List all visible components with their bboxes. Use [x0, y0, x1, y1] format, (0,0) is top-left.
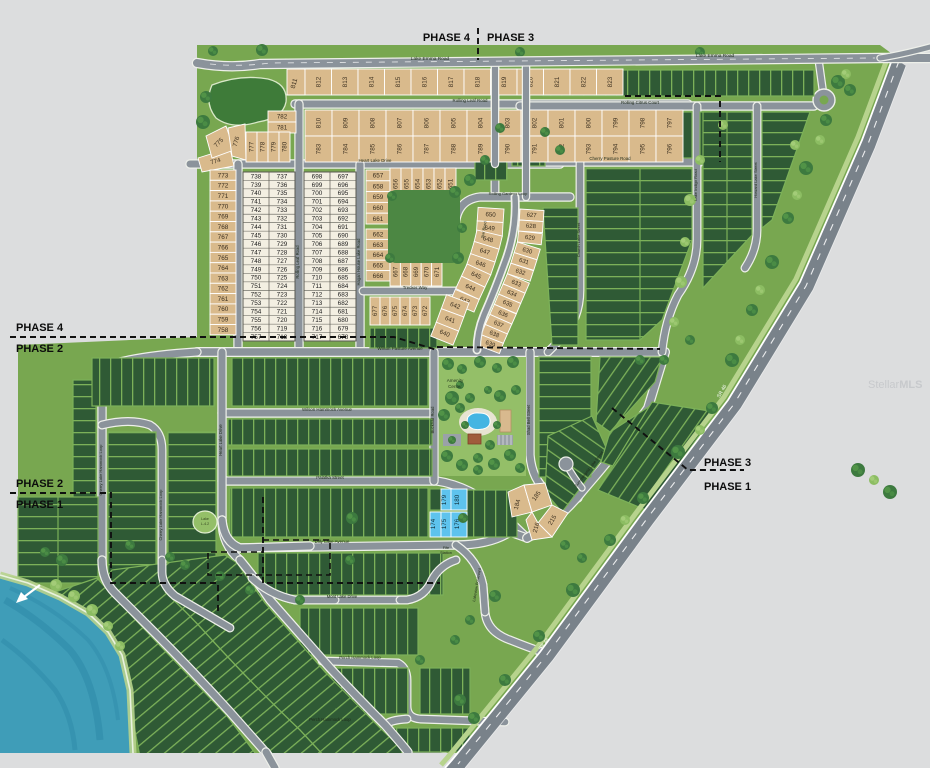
svg-text:Center: Center	[448, 384, 462, 389]
svg-text:758: 758	[218, 327, 229, 334]
svg-text:StellarMLS: StellarMLS	[868, 379, 922, 391]
svg-text:788: 788	[451, 143, 458, 154]
svg-text:PHASE 4: PHASE 4	[16, 322, 64, 334]
svg-text:680: 680	[338, 317, 349, 324]
svg-text:Perch Hammock Loop: Perch Hammock Loop	[309, 717, 351, 722]
svg-text:672: 672	[422, 305, 429, 316]
svg-text:823: 823	[607, 76, 614, 87]
svg-text:785: 785	[370, 143, 377, 154]
svg-text:652: 652	[437, 178, 444, 189]
svg-text:Wilson Pasture Avenue: Wilson Pasture Avenue	[377, 346, 423, 351]
svg-text:709: 709	[312, 266, 323, 273]
svg-text:767: 767	[218, 234, 229, 241]
svg-text:671: 671	[434, 266, 441, 277]
svg-text:666: 666	[373, 273, 384, 280]
svg-text:735: 735	[277, 190, 288, 197]
svg-text:Cherry Lake Hammock Loop: Cherry Lake Hammock Loop	[98, 444, 103, 496]
svg-text:771: 771	[218, 193, 229, 200]
svg-text:175: 175	[441, 518, 448, 529]
svg-text:Hagan House Lake Road: Hagan House Lake Road	[356, 238, 361, 286]
svg-text:684: 684	[338, 283, 349, 290]
svg-text:779: 779	[271, 141, 278, 152]
svg-text:793: 793	[586, 143, 593, 154]
svg-text:821: 821	[554, 76, 561, 87]
svg-text:683: 683	[338, 292, 349, 299]
svg-text:730: 730	[277, 232, 288, 239]
svg-text:777: 777	[249, 141, 256, 152]
svg-text:Lake Indigo Road: Lake Indigo Road	[693, 169, 698, 200]
svg-text:Lake: Lake	[201, 517, 209, 521]
svg-text:734: 734	[277, 199, 288, 206]
svg-text:772: 772	[218, 183, 229, 190]
svg-text:804: 804	[478, 117, 485, 128]
svg-text:628: 628	[526, 224, 537, 231]
svg-text:661: 661	[373, 216, 384, 223]
svg-text:738: 738	[251, 173, 262, 180]
svg-text:PHASE 3: PHASE 3	[704, 457, 751, 469]
svg-text:Mont Lake Drive: Mont Lake Drive	[327, 594, 358, 599]
svg-text:Shad Bell Street: Shad Bell Street	[526, 404, 531, 435]
svg-text:707: 707	[312, 249, 323, 256]
svg-text:Heart Lake Drive: Heart Lake Drive	[359, 158, 393, 163]
svg-text:736: 736	[277, 182, 288, 189]
svg-text:Lake Emma Road: Lake Emma Road	[411, 56, 450, 62]
svg-text:733: 733	[277, 207, 288, 214]
svg-text:739: 739	[251, 182, 262, 189]
svg-text:688: 688	[338, 249, 349, 256]
svg-text:674: 674	[402, 305, 409, 316]
svg-text:665: 665	[373, 263, 384, 270]
svg-text:765: 765	[218, 255, 229, 262]
svg-text:725: 725	[277, 275, 288, 282]
svg-text:Lake Emma Road: Lake Emma Road	[696, 53, 735, 59]
svg-text:817: 817	[448, 76, 455, 87]
svg-text:PHASE 4: PHASE 4	[423, 32, 471, 44]
svg-text:Heart Lake Drive: Heart Lake Drive	[218, 424, 223, 456]
svg-text:783: 783	[316, 143, 323, 154]
svg-text:PHASE 2: PHASE 2	[16, 478, 63, 490]
svg-text:761: 761	[218, 296, 229, 303]
svg-text:808: 808	[370, 117, 377, 128]
svg-text:754: 754	[251, 308, 262, 315]
svg-text:Dilly Lake Avenue: Dilly Lake Avenue	[315, 539, 350, 544]
svg-text:Trecker Way: Trecker Way	[403, 285, 428, 290]
svg-text:806: 806	[424, 117, 431, 128]
svg-text:Rolling Leaf Road: Rolling Leaf Road	[295, 245, 300, 279]
svg-text:805: 805	[451, 117, 458, 128]
svg-text:682: 682	[338, 300, 349, 307]
svg-text:691: 691	[338, 224, 349, 231]
svg-text:695: 695	[338, 190, 349, 197]
svg-text:741: 741	[251, 199, 262, 206]
svg-text:750: 750	[251, 275, 262, 282]
svg-text:669: 669	[413, 266, 420, 277]
svg-text:809: 809	[343, 117, 350, 128]
svg-text:694: 694	[338, 199, 349, 206]
svg-text:801: 801	[559, 117, 566, 128]
svg-text:Cherry Lake Hammock Loop: Cherry Lake Hammock Loop	[158, 489, 163, 541]
svg-text:814: 814	[368, 76, 375, 87]
svg-text:664: 664	[373, 252, 384, 259]
svg-text:816: 816	[421, 76, 428, 87]
svg-text:627: 627	[526, 213, 537, 220]
svg-text:729: 729	[277, 241, 288, 248]
svg-text:773: 773	[218, 172, 229, 179]
svg-text:658: 658	[373, 183, 384, 190]
svg-text:791: 791	[532, 143, 539, 154]
svg-text:815: 815	[395, 76, 402, 87]
svg-text:704: 704	[312, 224, 323, 231]
svg-text:657: 657	[373, 173, 384, 180]
svg-text:715: 715	[312, 317, 323, 324]
svg-text:675: 675	[392, 305, 399, 316]
svg-text:732: 732	[277, 216, 288, 223]
svg-text:728: 728	[277, 249, 288, 256]
svg-text:803: 803	[505, 117, 512, 128]
svg-text:663: 663	[373, 242, 384, 249]
svg-text:762: 762	[218, 286, 229, 293]
svg-text:726: 726	[277, 266, 288, 273]
svg-text:710: 710	[312, 275, 323, 282]
svg-text:745: 745	[251, 232, 262, 239]
svg-text:696: 696	[338, 182, 349, 189]
svg-text:697: 697	[338, 173, 349, 180]
svg-text:794: 794	[613, 143, 620, 154]
svg-text:673: 673	[412, 305, 419, 316]
svg-text:784: 784	[343, 143, 350, 154]
svg-text:Fife: Fife	[443, 546, 449, 550]
svg-text:778: 778	[260, 141, 267, 152]
svg-text:656: 656	[393, 178, 400, 189]
svg-text:Rolling Leaf Road: Rolling Leaf Road	[453, 98, 488, 103]
svg-text:699: 699	[312, 182, 323, 189]
svg-text:737: 737	[277, 173, 288, 180]
svg-text:723: 723	[277, 292, 288, 299]
svg-text:787: 787	[424, 143, 431, 154]
svg-text:Rolling Citrus Court: Rolling Citrus Court	[621, 100, 660, 105]
svg-text:689: 689	[338, 241, 349, 248]
svg-text:755: 755	[251, 317, 262, 324]
svg-text:Amenity: Amenity	[447, 378, 464, 383]
svg-text:654: 654	[415, 178, 422, 189]
svg-text:769: 769	[218, 213, 229, 220]
svg-text:800: 800	[586, 117, 593, 128]
svg-text:PHASE 2: PHASE 2	[16, 343, 63, 355]
svg-text:819: 819	[501, 76, 508, 87]
svg-text:746: 746	[251, 241, 262, 248]
svg-text:712: 712	[312, 292, 323, 299]
svg-text:653: 653	[426, 178, 433, 189]
svg-text:782: 782	[277, 114, 288, 121]
svg-text:797: 797	[667, 117, 674, 128]
svg-text:PHASE 1: PHASE 1	[704, 481, 751, 493]
svg-text:780: 780	[282, 141, 289, 152]
svg-text:768: 768	[218, 224, 229, 231]
svg-text:798: 798	[640, 117, 647, 128]
svg-text:766: 766	[218, 244, 229, 251]
svg-text:731: 731	[277, 224, 288, 231]
svg-text:703: 703	[312, 216, 323, 223]
svg-text:660: 660	[373, 205, 384, 212]
svg-text:179: 179	[441, 494, 448, 505]
svg-text:747: 747	[251, 249, 262, 256]
svg-text:676: 676	[382, 305, 389, 316]
svg-text:692: 692	[338, 216, 349, 223]
svg-text:679: 679	[338, 325, 349, 332]
svg-text:795: 795	[640, 143, 647, 154]
svg-text:807: 807	[397, 117, 404, 128]
svg-text:701: 701	[312, 199, 323, 206]
svg-text:705: 705	[312, 232, 323, 239]
svg-text:716: 716	[312, 325, 323, 332]
svg-text:727: 727	[277, 258, 288, 265]
svg-text:756: 756	[251, 325, 262, 332]
svg-text:700: 700	[312, 190, 323, 197]
svg-text:748: 748	[251, 258, 262, 265]
svg-text:822: 822	[580, 76, 587, 87]
svg-text:681: 681	[338, 308, 349, 315]
svg-text:753: 753	[251, 300, 262, 307]
svg-text:786: 786	[397, 143, 404, 154]
svg-text:818: 818	[474, 76, 481, 87]
svg-text:752: 752	[251, 292, 262, 299]
svg-text:Church Lake Street: Church Lake Street	[576, 222, 581, 257]
svg-text:742: 742	[251, 207, 262, 214]
svg-text:759: 759	[218, 317, 229, 324]
svg-text:Bucknail Road: Bucknail Road	[430, 406, 435, 434]
svg-text:813: 813	[342, 76, 349, 87]
svg-text:668: 668	[403, 266, 410, 277]
svg-text:764: 764	[218, 265, 229, 272]
svg-text:740: 740	[251, 190, 262, 197]
svg-text:724: 724	[277, 283, 288, 290]
svg-text:690: 690	[338, 232, 349, 239]
svg-text:763: 763	[218, 275, 229, 282]
svg-text:Wilson Hammock Avenue: Wilson Hammock Avenue	[302, 407, 353, 412]
svg-text:781: 781	[277, 125, 288, 132]
svg-text:667: 667	[392, 266, 399, 277]
svg-text:PHASE 1: PHASE 1	[16, 499, 63, 511]
svg-text:686: 686	[338, 266, 349, 273]
svg-text:810: 810	[316, 117, 323, 128]
svg-text:802: 802	[532, 117, 539, 128]
svg-text:751: 751	[251, 283, 262, 290]
svg-text:743: 743	[251, 216, 262, 223]
svg-text:698: 698	[312, 173, 323, 180]
svg-text:677: 677	[372, 305, 379, 316]
svg-text:722: 722	[277, 300, 288, 307]
svg-text:659: 659	[373, 194, 384, 201]
svg-text:629: 629	[525, 235, 536, 242]
svg-text:693: 693	[338, 207, 349, 214]
svg-text:799: 799	[613, 117, 620, 128]
svg-text:650: 650	[485, 211, 496, 219]
svg-text:770: 770	[218, 203, 229, 210]
svg-text:PHASE 3: PHASE 3	[487, 32, 534, 44]
svg-text:721: 721	[277, 308, 288, 315]
svg-text:719: 719	[277, 325, 288, 332]
svg-text:720: 720	[277, 317, 288, 324]
svg-text:670: 670	[424, 266, 431, 277]
svg-text:760: 760	[218, 306, 229, 313]
svg-text:687: 687	[338, 258, 349, 265]
svg-text:711: 711	[312, 283, 323, 290]
svg-text:655: 655	[404, 178, 411, 189]
svg-text:713: 713	[312, 300, 323, 307]
svg-text:Perch Hammock Loop: Perch Hammock Loop	[339, 655, 381, 660]
svg-text:Palatka Street: Palatka Street	[316, 475, 344, 480]
svg-text:812: 812	[315, 76, 322, 87]
svg-text:789: 789	[478, 143, 485, 154]
svg-text:L-4.2: L-4.2	[201, 522, 209, 526]
svg-text:714: 714	[312, 308, 323, 315]
svg-text:Howard Lake Street: Howard Lake Street	[753, 161, 758, 197]
svg-text:Cherry Pasture Road: Cherry Pasture Road	[589, 156, 631, 161]
svg-text:Rolling Gardens Loop: Rolling Gardens Loop	[489, 191, 528, 196]
svg-text:708: 708	[312, 258, 323, 265]
svg-text:180: 180	[454, 494, 461, 505]
svg-text:796: 796	[667, 143, 674, 154]
svg-text:174: 174	[430, 518, 437, 529]
svg-text:706: 706	[312, 241, 323, 248]
svg-text:662: 662	[373, 231, 384, 238]
svg-text:749: 749	[251, 266, 262, 273]
svg-text:744: 744	[251, 224, 262, 231]
svg-text:Station: Station	[440, 551, 452, 555]
svg-text:685: 685	[338, 275, 349, 282]
svg-text:702: 702	[312, 207, 323, 214]
svg-text:790: 790	[505, 143, 512, 154]
